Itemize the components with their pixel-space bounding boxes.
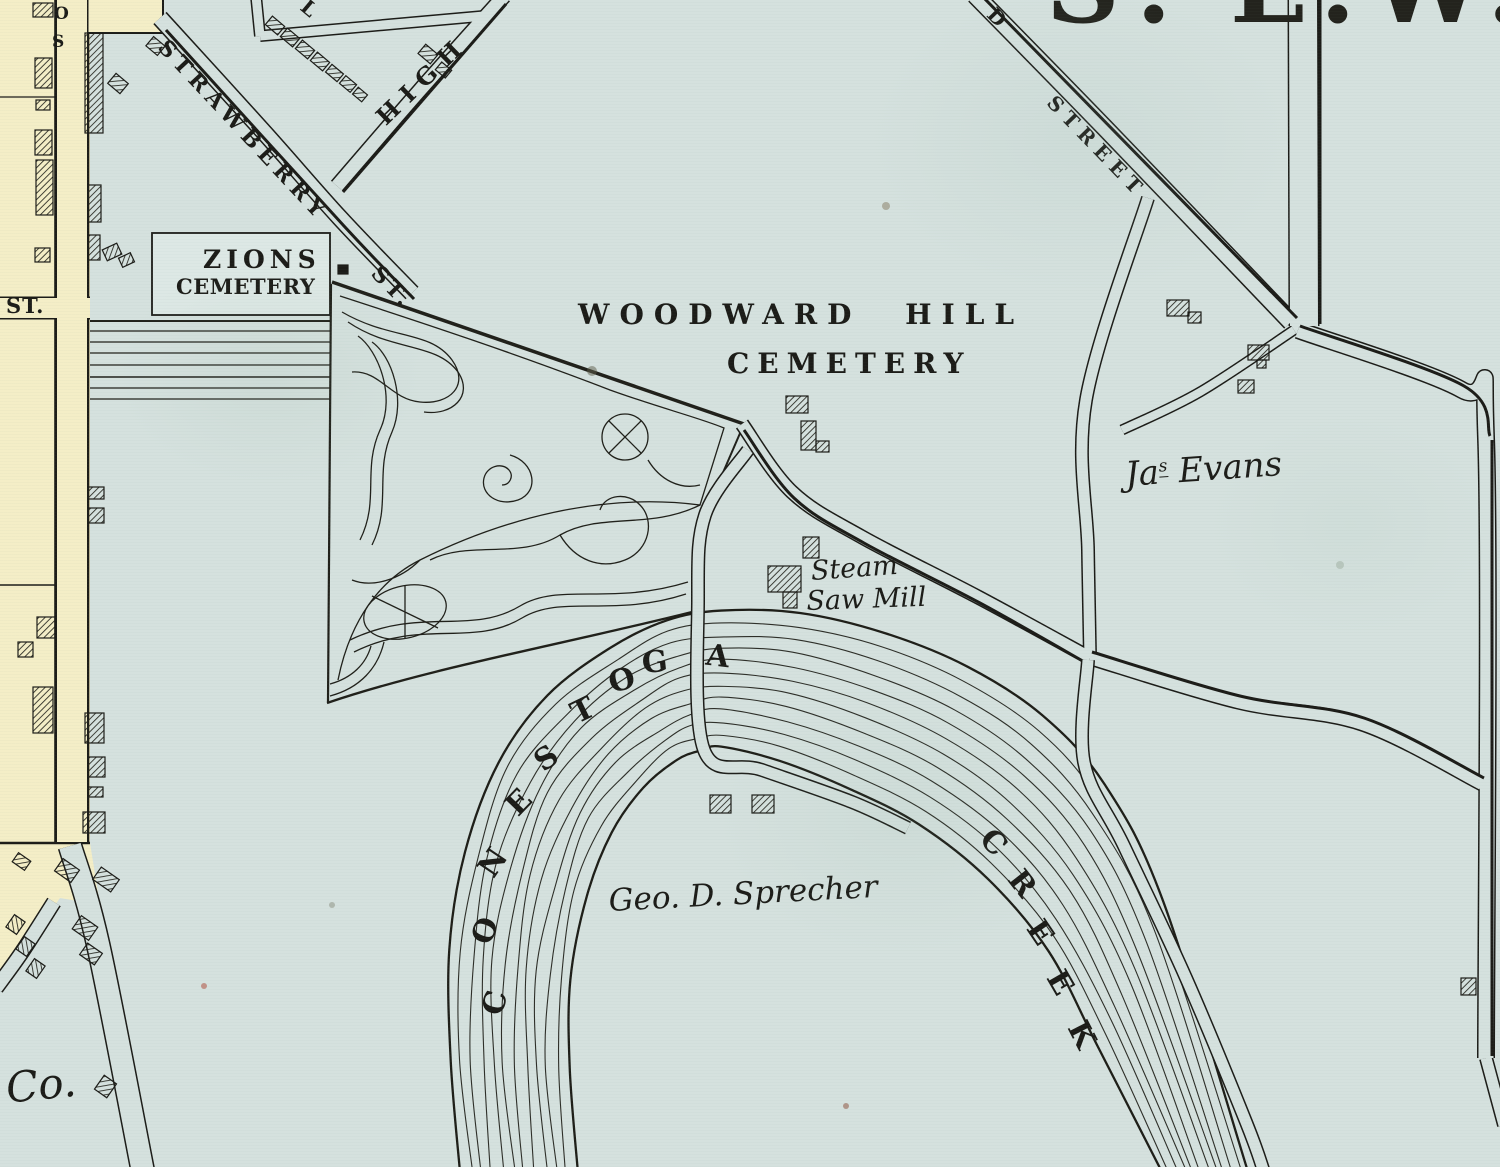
ward-letter: . <box>1320 0 1356 38</box>
label-zions-cemetery-line2: CEMETERY <box>176 276 315 297</box>
ward-letter: . <box>1487 0 1500 38</box>
roads <box>0 0 1500 1167</box>
label-vertical-street-letter: S <box>52 34 64 51</box>
label-vertical-street-letter: O <box>54 6 69 23</box>
building-symbols <box>6 3 1476 1098</box>
label-left-st: ST. <box>6 295 44 316</box>
label-zions-cemetery-line1: ZIONS <box>203 247 321 272</box>
ward-letter: . <box>1136 0 1172 38</box>
antique-ward-map: S . E . W . STRAWBERRY ST. HIGH L D STRE… <box>0 0 1500 1167</box>
ward-letter: W <box>1370 0 1485 38</box>
ropewalk-lines <box>90 321 330 399</box>
conestoga-letter: A <box>704 641 731 674</box>
conestoga-letter: G <box>641 647 670 680</box>
label-woodward-hill-line1: WOODWARD HILL <box>578 301 1024 329</box>
ward-letter: S <box>1046 0 1120 38</box>
roads-over-creek <box>697 450 1264 1167</box>
jas-evans-prefix: Ja <box>1124 453 1161 495</box>
label-woodward-hill-line2: CEMETERY <box>727 350 972 378</box>
jas-evans-rest: Evans <box>1166 444 1283 492</box>
paper-stains <box>201 202 1344 1109</box>
label-steam-saw-mill-line2: Saw Mill <box>806 584 927 615</box>
ward-letter: E <box>1230 0 1308 38</box>
label-co-partial: Co. <box>4 1061 78 1110</box>
label-steam-saw-mill-line1: Steam <box>810 552 899 585</box>
label-jas-evans: Jas Evans <box>1124 447 1283 492</box>
map-artwork <box>0 0 1500 1167</box>
